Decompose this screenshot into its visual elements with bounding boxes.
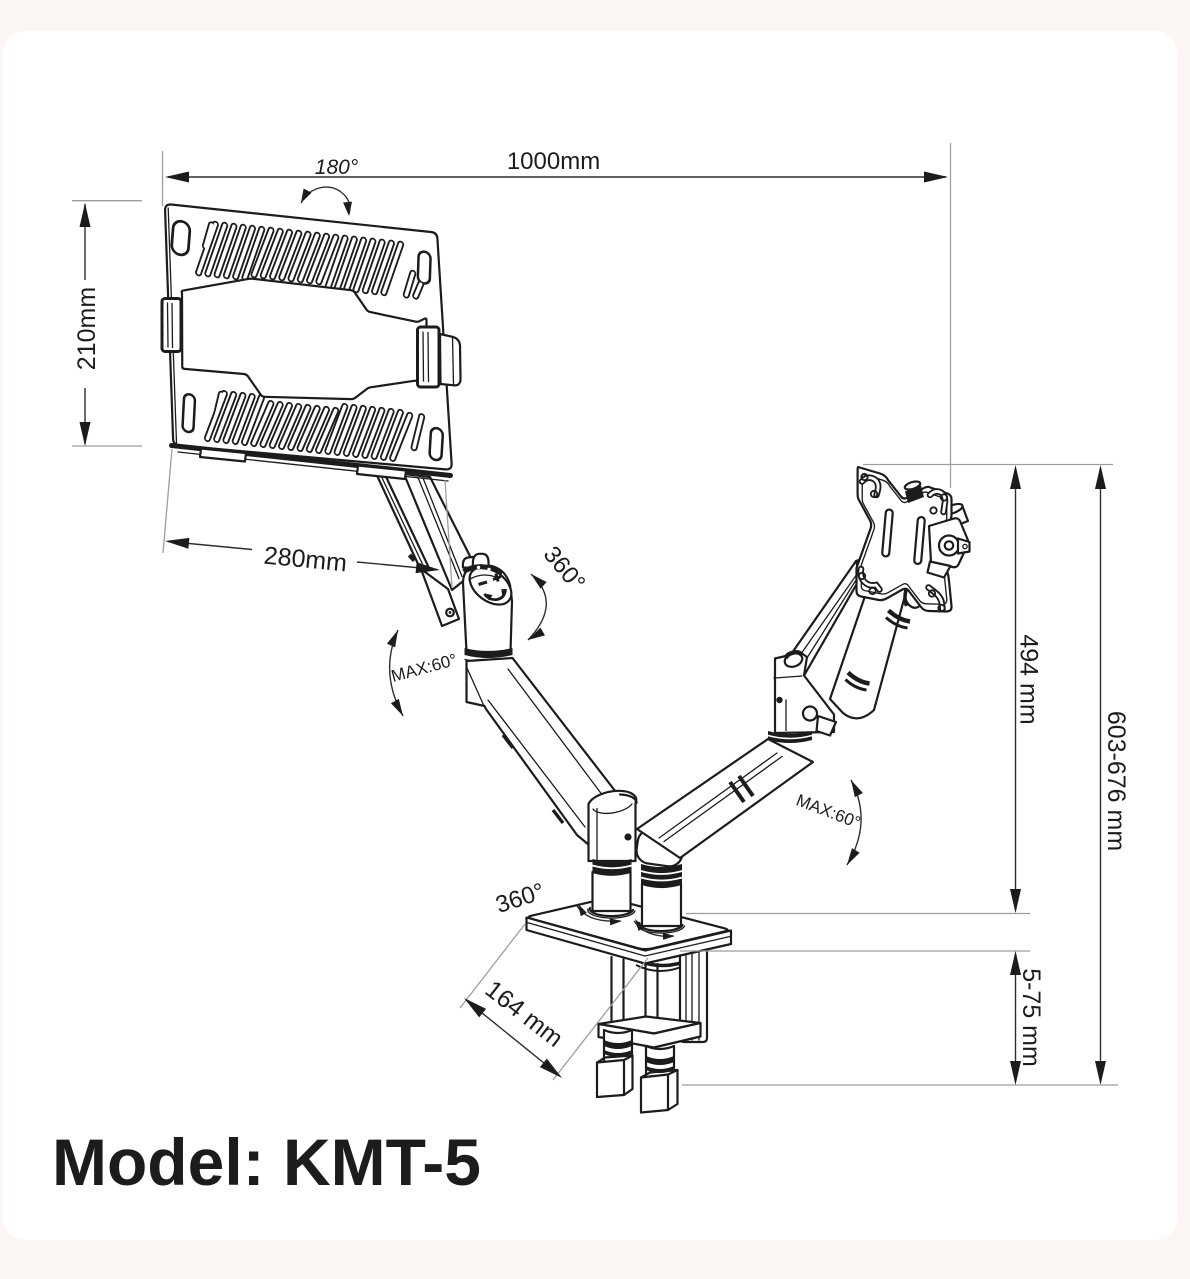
svg-text:494 mm: 494 mm xyxy=(1015,634,1043,724)
svg-text:603-676 mm: 603-676 mm xyxy=(1102,711,1130,851)
svg-text:5-75 mm: 5-75 mm xyxy=(1017,968,1045,1067)
svg-text:210mm: 210mm xyxy=(73,287,101,370)
svg-text:180°: 180° xyxy=(315,156,358,179)
svg-text:Model: KMT-5: Model: KMT-5 xyxy=(52,1125,481,1199)
svg-text:1000mm: 1000mm xyxy=(507,148,600,175)
